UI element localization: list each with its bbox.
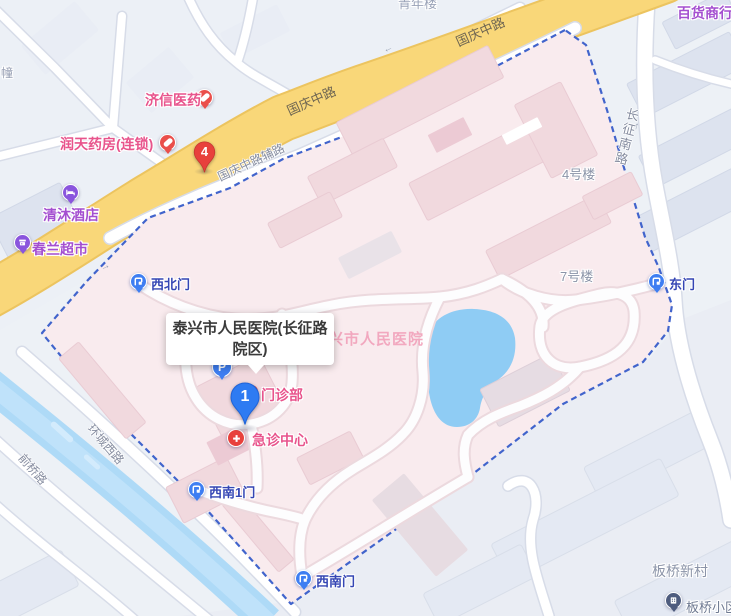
southwest-gate1-icon[interactable] (188, 481, 205, 498)
runtian-pharmacy-label[interactable]: 润天药房(连锁) (60, 134, 153, 154)
banqiao-village-label: 板桥新村 (652, 561, 708, 581)
hospital-infobox-title: 泰兴市人民医院(长征路院区) (173, 320, 328, 358)
hospital-infobox[interactable]: 泰兴市人民医院(长征路院区) (166, 313, 334, 365)
banqiao-community-label[interactable]: 板桥小区 (686, 597, 731, 616)
east-gate-label[interactable]: 东门 (669, 274, 695, 293)
runtian-pharmacy-pin-icon[interactable] (159, 134, 176, 151)
marker-1[interactable]: 1 (228, 382, 262, 428)
southwest-gate-icon[interactable] (295, 570, 312, 587)
marker-4-number: 4 (192, 144, 217, 159)
residential-building-icon (668, 595, 679, 606)
medical-cross-icon (231, 433, 242, 444)
bed-icon (65, 187, 76, 198)
east-gate-icon[interactable] (648, 273, 665, 290)
banqiao-community-pin-icon[interactable] (665, 592, 682, 609)
qingmu-hotel-pin-icon[interactable] (62, 184, 79, 201)
building-7-label: 7号楼 (560, 266, 593, 285)
map-canvas (0, 0, 731, 616)
chunlan-supermarket-pin-icon[interactable] (14, 234, 31, 251)
gate-icon (133, 276, 144, 287)
northwest-gate-label[interactable]: 西北门 (151, 274, 190, 293)
emergency-center-label[interactable]: 急诊中心 (252, 430, 308, 450)
gate-icon (651, 276, 662, 287)
department-store-label[interactable]: 百货商行 (677, 3, 731, 23)
map-viewport[interactable]: 国庆中路 国庆中路 国庆中路辅路 长征南路 环城西路 前桥路 ↑ ↑ ↑ 幢 青… (0, 0, 731, 616)
outpatient-label[interactable]: 门诊部 (261, 385, 303, 405)
gate-icon (298, 573, 309, 584)
chunlan-supermarket-label[interactable]: 春兰超市 (32, 239, 88, 259)
pill-icon (162, 137, 173, 147)
southwest-gate-label[interactable]: 西南门 (316, 571, 355, 590)
qingmu-hotel-label[interactable]: 清沐酒店 (43, 205, 99, 225)
marker-4[interactable]: 4 (192, 141, 217, 175)
partial-building-label-left: 幢 (1, 64, 13, 81)
southwest-gate1-label[interactable]: 西南1门 (209, 482, 255, 501)
northwest-gate-icon[interactable] (130, 273, 147, 290)
marker-1-number: 1 (228, 388, 262, 406)
gate-icon (191, 484, 202, 495)
building-4-label: 4号楼 (562, 164, 595, 183)
partial-building-label-top: 青年楼 (398, 0, 437, 12)
jixin-pharmacy-label[interactable]: 济信医药 (145, 90, 201, 110)
storefront-icon (17, 237, 28, 248)
